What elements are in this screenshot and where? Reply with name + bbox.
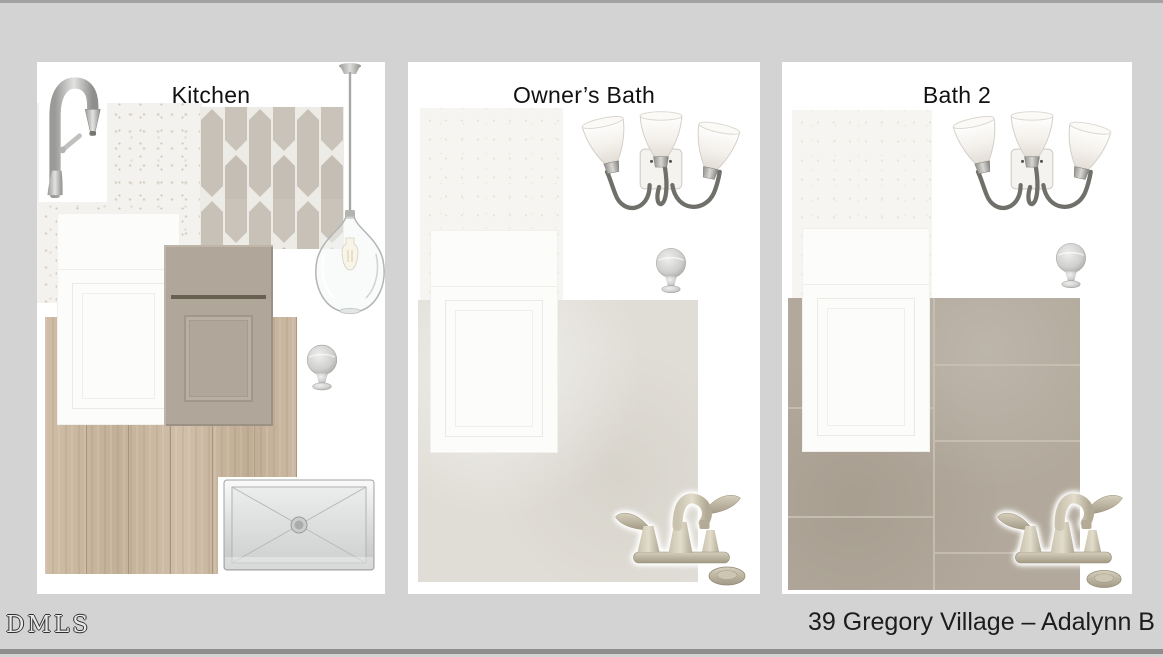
stainless-undermount-sink-image (218, 477, 380, 574)
centerset-faucet-icon (611, 468, 751, 568)
board-title: Bath 2 (782, 82, 1132, 109)
owners-bath-cabinet-knob (650, 247, 692, 295)
cabinet-door-panel (817, 298, 915, 436)
design-board-page: { "footer": { "watermark": "DMLS", "proj… (0, 0, 1163, 657)
board-title: Owner’s Bath (408, 82, 760, 109)
bath2-white-vanity-cabinet (802, 228, 930, 452)
bath-2-board: Bath 2 (782, 62, 1132, 594)
bath2-centerset-faucet (993, 468, 1133, 568)
owners-bath-centerset-faucet (611, 468, 751, 568)
cabinet-drawer-front (430, 230, 558, 287)
bath2-cabinet-knob (1050, 242, 1092, 290)
owners-bath-drain-stopper (707, 565, 747, 587)
owners-bath-board: Owner’s Bath (408, 62, 760, 594)
cabinet-drawer-front (802, 228, 930, 285)
board-title: Kitchen (37, 82, 385, 109)
project-title: 39 Gregory Village – Adalynn B (808, 608, 1155, 637)
kitchen-white-shaker-cabinet (57, 213, 180, 425)
cabinet-door-panel (445, 300, 543, 437)
kitchen-cabinet-knob (304, 343, 340, 393)
cabinet-drawer-front (57, 213, 180, 270)
bath2-vanity-light-fixture (942, 108, 1122, 230)
mls-watermark: DMLS (6, 612, 91, 638)
centerset-faucet-icon (993, 468, 1133, 568)
cabinet-door-panel (72, 283, 165, 409)
kitchen-greige-shaker-cabinet (164, 245, 273, 426)
sink-icon (218, 477, 380, 574)
top-edge-strip (0, 0, 1163, 3)
bath2-drain-stopper (1085, 568, 1123, 590)
cabinet-drawer-gap (171, 295, 266, 299)
owners-bath-white-vanity-cabinet (430, 230, 558, 453)
kitchen-board: Kitchen (37, 62, 385, 594)
owners-bath-vanity-light-fixture (571, 108, 751, 230)
bottom-edge-strip (0, 649, 1163, 654)
cabinet-door-panel (184, 315, 253, 402)
